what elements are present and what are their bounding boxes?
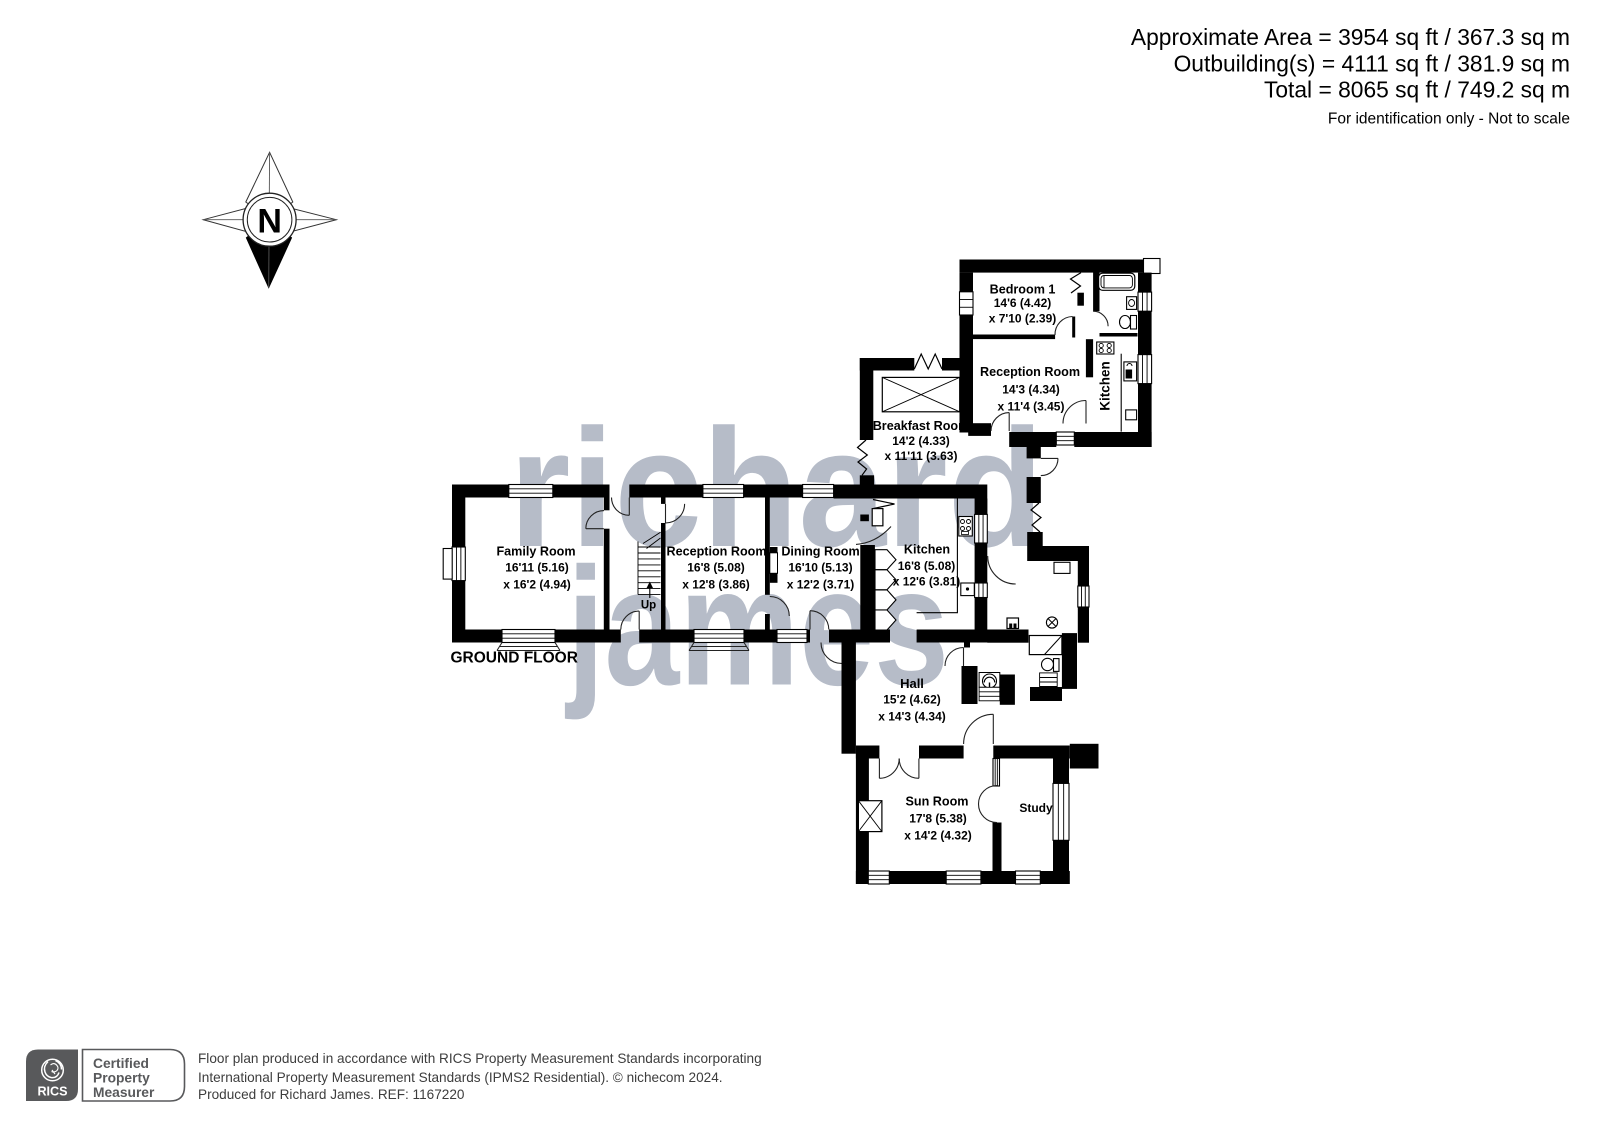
svg-text:17'8 (5.38): 17'8 (5.38) <box>909 812 967 826</box>
svg-text:16'8 (5.08): 16'8 (5.08) <box>898 559 956 573</box>
svg-text:x 11'11 (3.63): x 11'11 (3.63) <box>885 449 958 463</box>
svg-text:Sun Room: Sun Room <box>906 794 969 808</box>
svg-text:16'10 (5.13): 16'10 (5.13) <box>788 561 852 575</box>
svg-text:Kitchen: Kitchen <box>904 543 950 557</box>
svg-text:x 12'2 (3.71): x 12'2 (3.71) <box>787 578 855 592</box>
svg-text:Total = 8065 sq ft / 749.2 sq: Total = 8065 sq ft / 749.2 sq m <box>1264 77 1570 103</box>
svg-text:x 14'3 (4.34): x 14'3 (4.34) <box>878 710 946 724</box>
svg-text:Dining Room: Dining Room <box>781 545 859 559</box>
svg-text:x 12'6 (3.81): x 12'6 (3.81) <box>893 575 961 589</box>
svg-text:Produced for Richard James.: Produced for Richard James. REF: 1167220 <box>198 1087 465 1102</box>
svg-text:Floor plan produced in accorda: Floor plan produced in accordance with R… <box>198 1051 762 1066</box>
svg-text:Reception Room: Reception Room <box>666 545 766 559</box>
svg-text:14'2 (4.33): 14'2 (4.33) <box>892 434 950 448</box>
svg-text:Family Room: Family Room <box>496 545 575 559</box>
svg-text:Outbuilding(s) = 4111 sq ft /: Outbuilding(s) = 4111 sq ft / 381.9 sq m <box>1174 51 1570 77</box>
svg-text:Study: Study <box>1019 801 1053 815</box>
svg-text:Certified: Certified <box>93 1056 149 1071</box>
svg-text:14'6 (4.42): 14'6 (4.42) <box>994 296 1052 310</box>
svg-text:15'2 (4.62): 15'2 (4.62) <box>883 693 941 707</box>
svg-text:Property: Property <box>93 1071 150 1086</box>
svg-text:Up: Up <box>641 600 656 612</box>
svg-text:16'8 (5.08): 16'8 (5.08) <box>687 561 745 575</box>
svg-text:16'11 (5.16): 16'11 (5.16) <box>505 561 569 575</box>
svg-text:Bedroom 1: Bedroom 1 <box>990 283 1056 297</box>
svg-text:RICS: RICS <box>37 1085 67 1099</box>
svg-text:x 7'10 (2.39): x 7'10 (2.39) <box>989 312 1057 326</box>
svg-text:GROUND FLOOR: GROUND FLOOR <box>451 650 578 667</box>
svg-text:International Property Measure: International Property Measurement Stand… <box>198 1070 723 1085</box>
svg-text:Hall: Hall <box>900 676 924 691</box>
svg-text:Approximate Area = 3954 sq ft: Approximate Area = 3954 sq ft / 367.3 sq… <box>1131 24 1570 50</box>
svg-text:x 14'2 (4.32): x 14'2 (4.32) <box>904 829 972 843</box>
svg-text:14'3 (4.34): 14'3 (4.34) <box>1002 383 1060 397</box>
svg-text:For identification only - Not: For identification only - Not to scale <box>1328 111 1570 128</box>
svg-text:Reception Room: Reception Room <box>980 365 1080 379</box>
svg-text:x 11'4 (3.45): x 11'4 (3.45) <box>998 400 1065 414</box>
svg-text:Breakfast Room: Breakfast Room <box>873 419 970 433</box>
svg-text:x 16'2 (4.94): x 16'2 (4.94) <box>503 578 571 592</box>
svg-text:x 12'8 (3.86): x 12'8 (3.86) <box>682 578 750 592</box>
svg-text:Measurer: Measurer <box>93 1085 155 1100</box>
svg-text:Kitchen: Kitchen <box>1098 361 1113 411</box>
svg-text:N: N <box>257 203 282 241</box>
